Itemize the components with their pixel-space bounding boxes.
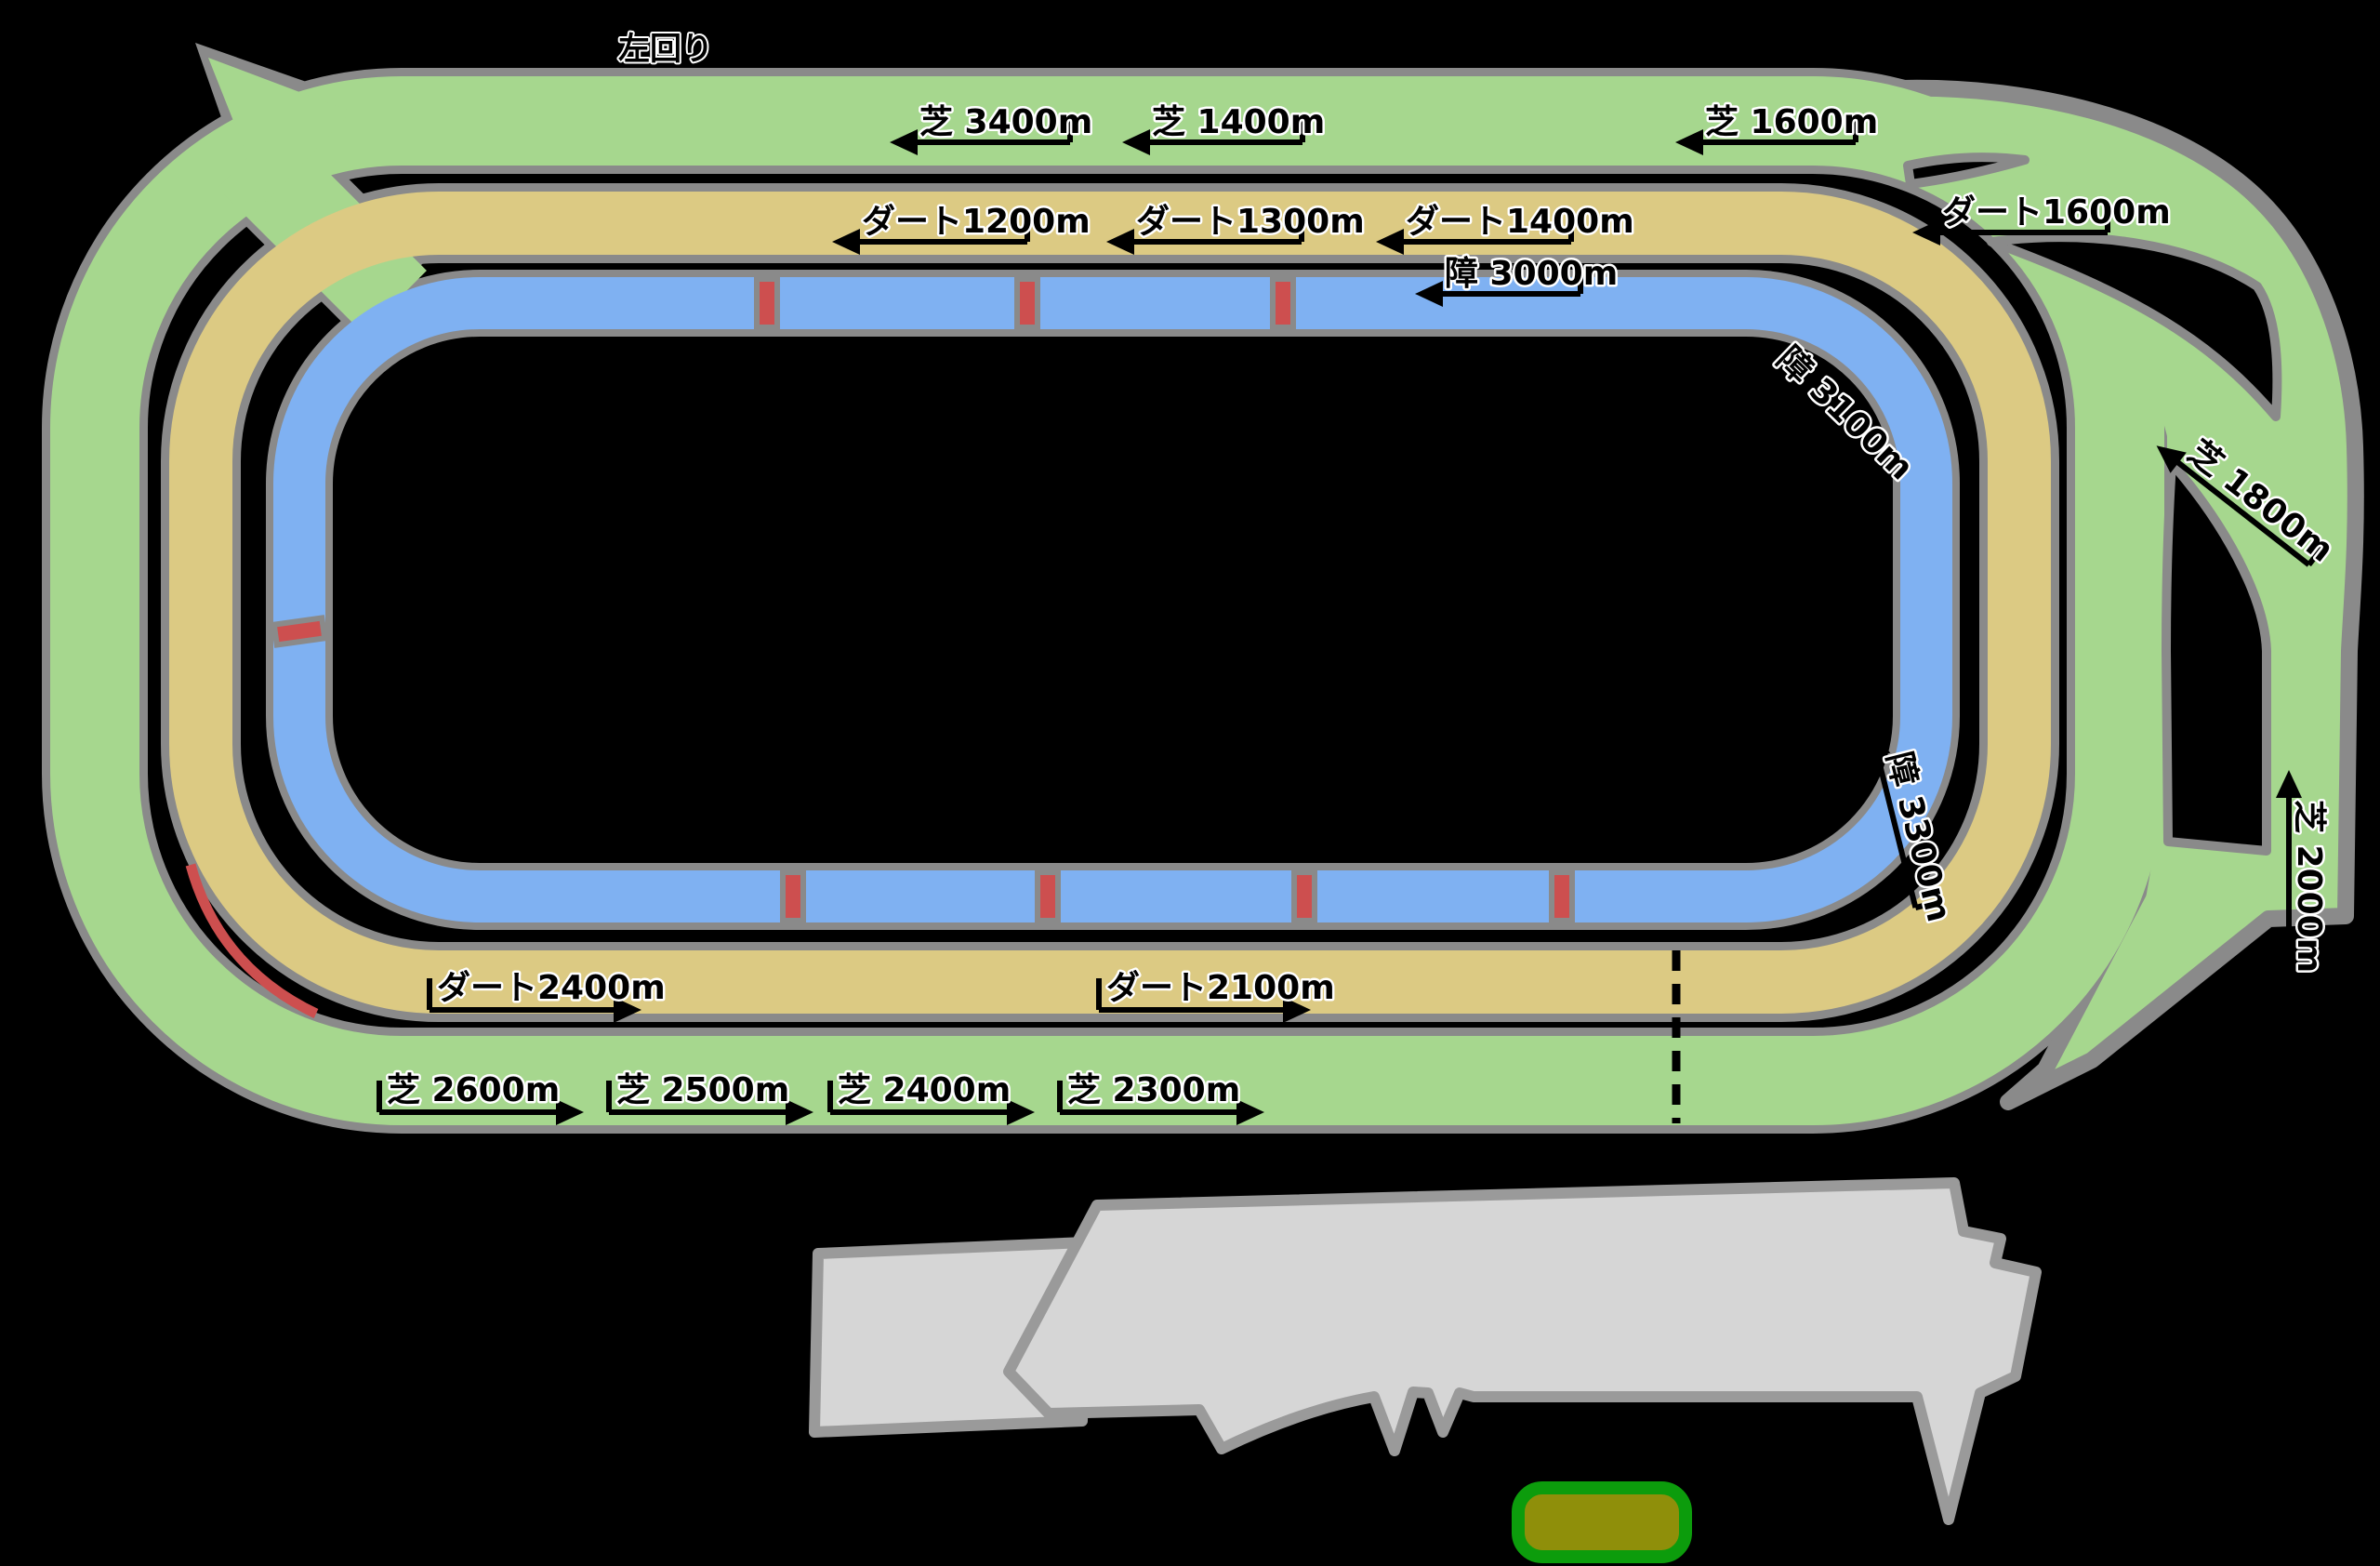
paddock [1518,1488,1686,1557]
label-text: 障 3000m [1445,255,1618,293]
hurdle-marker [1038,872,1058,921]
hurdle-marker [757,279,777,327]
label-text: 芝 2500m [616,1071,789,1109]
hurdle-marker [1017,279,1038,327]
label-text: 芝 2400m [838,1071,1011,1109]
label-text: 芝 2000m [2290,800,2328,973]
label-text: ダート1600m [1942,193,2171,232]
label-text: ダート1300m [1136,203,1365,241]
label-text: 芝 2600m [387,1071,560,1109]
hurdle-marker [783,872,803,921]
hurdle-marker [1273,279,1293,327]
label-text: ダート1400m [1406,203,1634,241]
label-text: 芝 1600m [1705,103,1878,141]
label-text: ダート2400m [437,969,666,1007]
hurdle-marker [274,617,325,644]
label-text: 芝 2300m [1067,1071,1240,1109]
label-text: 芝 1400m [1152,103,1325,141]
label-text: ダート2100m [1106,969,1335,1007]
racecourse-map: 芝 3400m 芝 1400m 芝 1600m ダート1200m ダート1300… [0,0,2380,1566]
label-text: ダート1200m [862,203,1091,241]
hurdle-marker [1294,872,1315,921]
direction-label: 左回り [618,31,713,68]
hurdle-marker [1552,872,1572,921]
track-map-svg: 芝 3400m 芝 1400m 芝 1600m ダート1200m ダート1300… [0,0,2380,1566]
label-text: 芝 3400m [919,103,1092,141]
